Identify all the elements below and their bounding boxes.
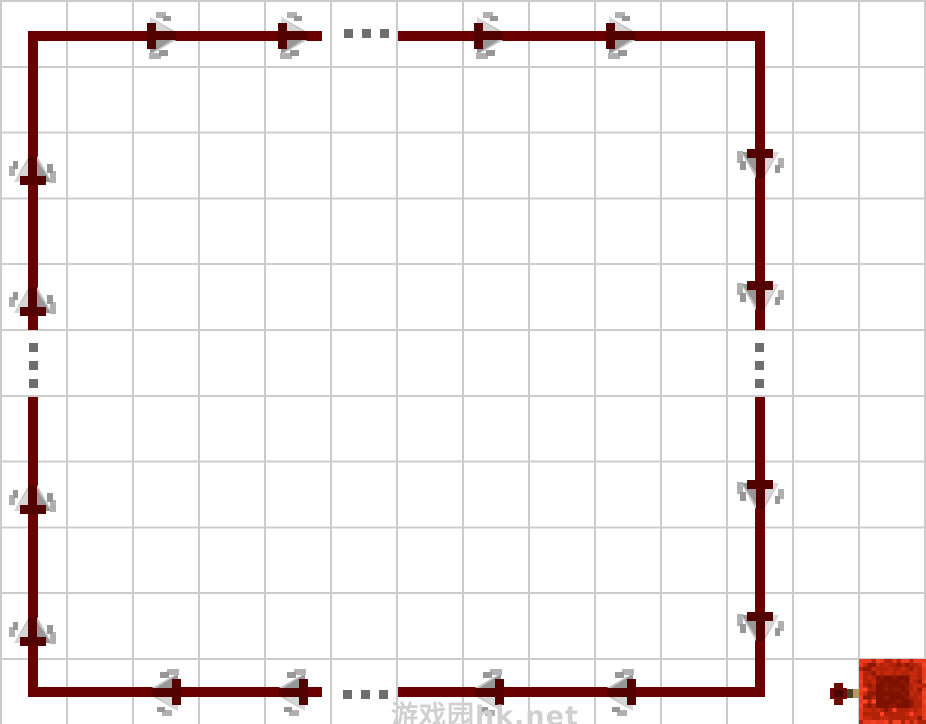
redstone-circuit-diagram: 游戏园hk.net	[0, 0, 926, 724]
repeater-arrow-left	[596, 667, 646, 717]
ellipsis-dot	[379, 690, 388, 699]
ellipsis-dot	[755, 379, 764, 388]
redstone-torch-icon	[826, 681, 862, 707]
repeater-arrow-down	[735, 139, 785, 189]
repeater-arrow-up	[8, 276, 58, 326]
wire-segment-top-right	[398, 31, 765, 41]
watermark-text: 游戏园hk.net	[391, 694, 579, 724]
redstone-block	[859, 659, 926, 724]
ellipsis-dot	[344, 29, 353, 38]
repeater-arrow-right	[596, 11, 646, 61]
ellipsis-dot	[755, 343, 764, 352]
repeater-arrow-left	[141, 667, 191, 717]
repeater-arrow-right	[268, 11, 318, 61]
repeater-arrow-up	[8, 606, 58, 656]
ellipsis-dot	[380, 29, 389, 38]
wire-segment-right-lower	[755, 397, 765, 697]
ellipsis-dot	[343, 690, 352, 699]
ellipsis-dot	[29, 343, 38, 352]
ellipsis-dot	[29, 379, 38, 388]
repeater-arrow-up	[8, 474, 58, 524]
repeater-arrow-down	[735, 271, 785, 321]
ellipsis-dot	[755, 361, 764, 370]
repeater-arrow-down	[735, 470, 785, 520]
ellipsis-dot	[362, 29, 371, 38]
ellipsis-dot	[29, 361, 38, 370]
repeater-arrow-up	[8, 145, 58, 195]
repeater-arrow-left	[268, 667, 318, 717]
ellipsis-dot	[361, 690, 370, 699]
repeater-arrow-right	[464, 11, 514, 61]
repeater-arrow-right	[137, 11, 187, 61]
repeater-arrow-down	[735, 602, 785, 652]
